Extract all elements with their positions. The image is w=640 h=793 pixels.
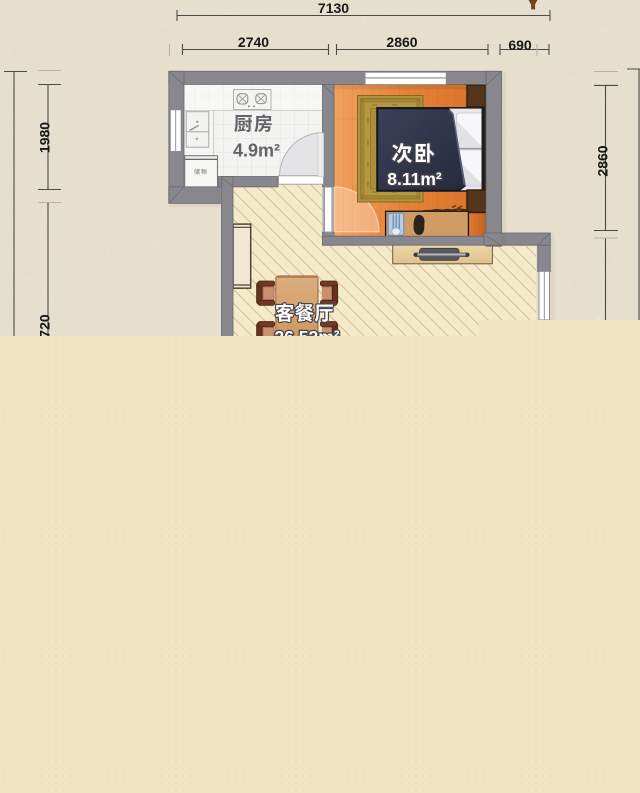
svg-text:690: 690 <box>508 37 532 53</box>
svg-text:2860: 2860 <box>595 145 611 176</box>
svg-text:2860: 2860 <box>386 34 417 50</box>
svg-text:7130: 7130 <box>318 0 349 16</box>
svg-text:4.9m²: 4.9m² <box>233 141 280 161</box>
svg-text:1980: 1980 <box>37 122 53 153</box>
svg-text:8.11m²: 8.11m² <box>387 169 442 189</box>
svg-text:720: 720 <box>36 314 52 338</box>
svg-text:2740: 2740 <box>238 34 269 50</box>
